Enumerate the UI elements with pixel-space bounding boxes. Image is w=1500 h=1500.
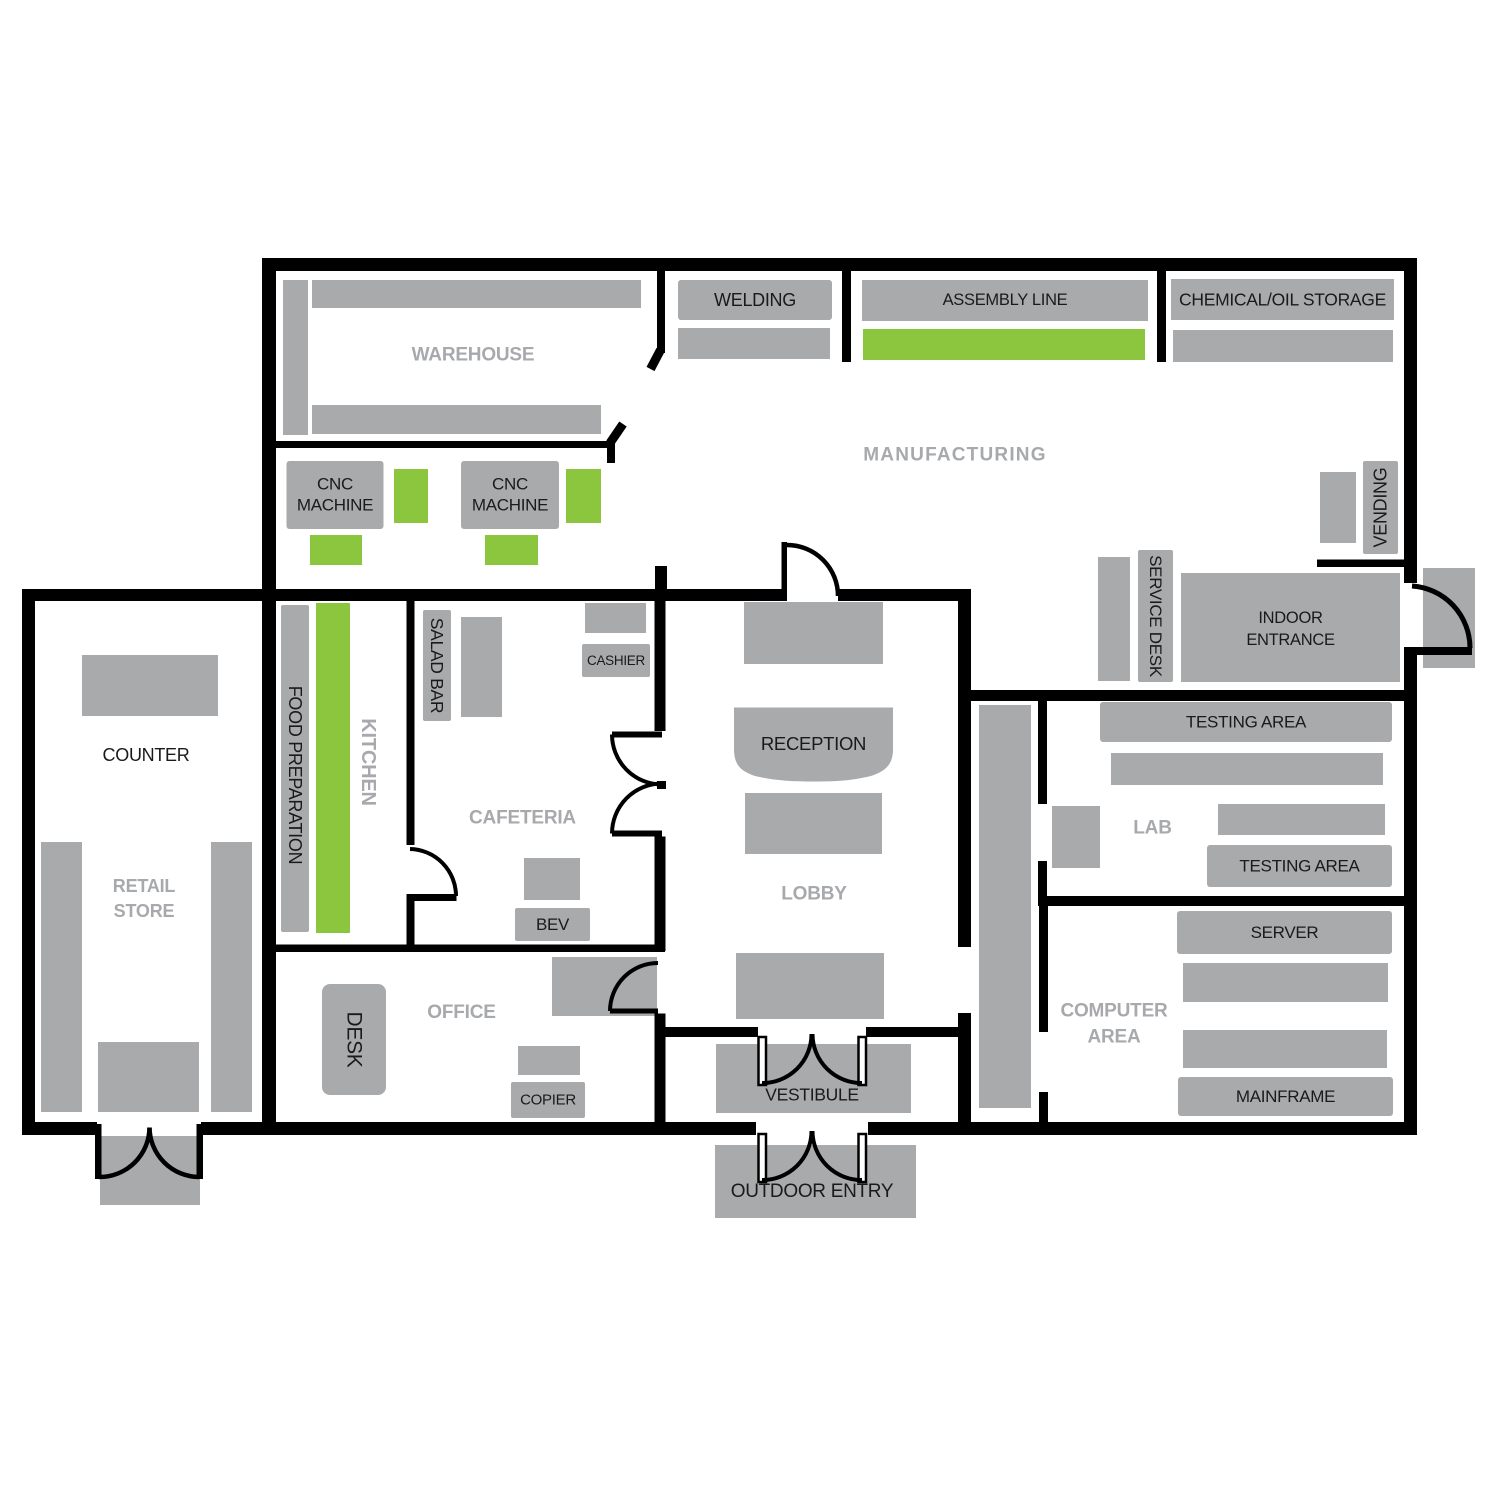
svg-text:FOOD PREPARATION: FOOD PREPARATION — [285, 686, 305, 865]
svg-text:RECEPTION: RECEPTION — [761, 733, 866, 754]
svg-text:SERVER: SERVER — [1251, 923, 1319, 942]
svg-text:LOBBY: LOBBY — [781, 884, 847, 905]
svg-text:MACHINE: MACHINE — [472, 496, 548, 515]
svg-text:WELDING: WELDING — [714, 290, 796, 310]
svg-text:SALAD BAR: SALAD BAR — [427, 618, 447, 714]
svg-text:COMPUTER: COMPUTER — [1060, 1001, 1168, 1022]
svg-text:SERVICE DESK: SERVICE DESK — [1146, 555, 1165, 678]
svg-text:VENDING: VENDING — [1371, 468, 1391, 548]
svg-text:INDOOR: INDOOR — [1258, 609, 1323, 627]
svg-text:OFFICE: OFFICE — [427, 1002, 495, 1023]
svg-text:BEV: BEV — [536, 915, 570, 934]
svg-text:OUTDOOR ENTRY: OUTDOOR ENTRY — [731, 1181, 894, 1202]
svg-text:CNC: CNC — [492, 475, 528, 494]
svg-text:WAREHOUSE: WAREHOUSE — [412, 345, 535, 366]
svg-text:COPIER: COPIER — [520, 1092, 576, 1109]
svg-text:TESTING AREA: TESTING AREA — [1239, 857, 1360, 876]
svg-text:TESTING AREA: TESTING AREA — [1186, 713, 1307, 732]
svg-text:LAB: LAB — [1133, 818, 1171, 839]
svg-text:CASHIER: CASHIER — [587, 653, 645, 668]
svg-text:CNC: CNC — [317, 475, 353, 494]
svg-text:RETAIL: RETAIL — [113, 876, 176, 896]
svg-text:DESK: DESK — [343, 1012, 366, 1068]
svg-text:AREA: AREA — [1087, 1027, 1141, 1048]
svg-text:ASSEMBLY LINE: ASSEMBLY LINE — [943, 291, 1068, 309]
svg-text:KITCHEN: KITCHEN — [357, 718, 379, 806]
svg-text:MAINFRAME: MAINFRAME — [1236, 1087, 1335, 1106]
svg-text:MANUFACTURING: MANUFACTURING — [863, 445, 1046, 466]
svg-text:ENTRANCE: ENTRANCE — [1246, 631, 1335, 649]
svg-text:CAFETERIA: CAFETERIA — [469, 808, 576, 829]
svg-text:CHEMICAL/OIL STORAGE: CHEMICAL/OIL STORAGE — [1179, 290, 1386, 310]
svg-text:MACHINE: MACHINE — [297, 496, 373, 515]
svg-text:STORE: STORE — [114, 901, 175, 921]
svg-text:COUNTER: COUNTER — [103, 745, 190, 765]
svg-text:VESTIBULE: VESTIBULE — [765, 1085, 859, 1105]
